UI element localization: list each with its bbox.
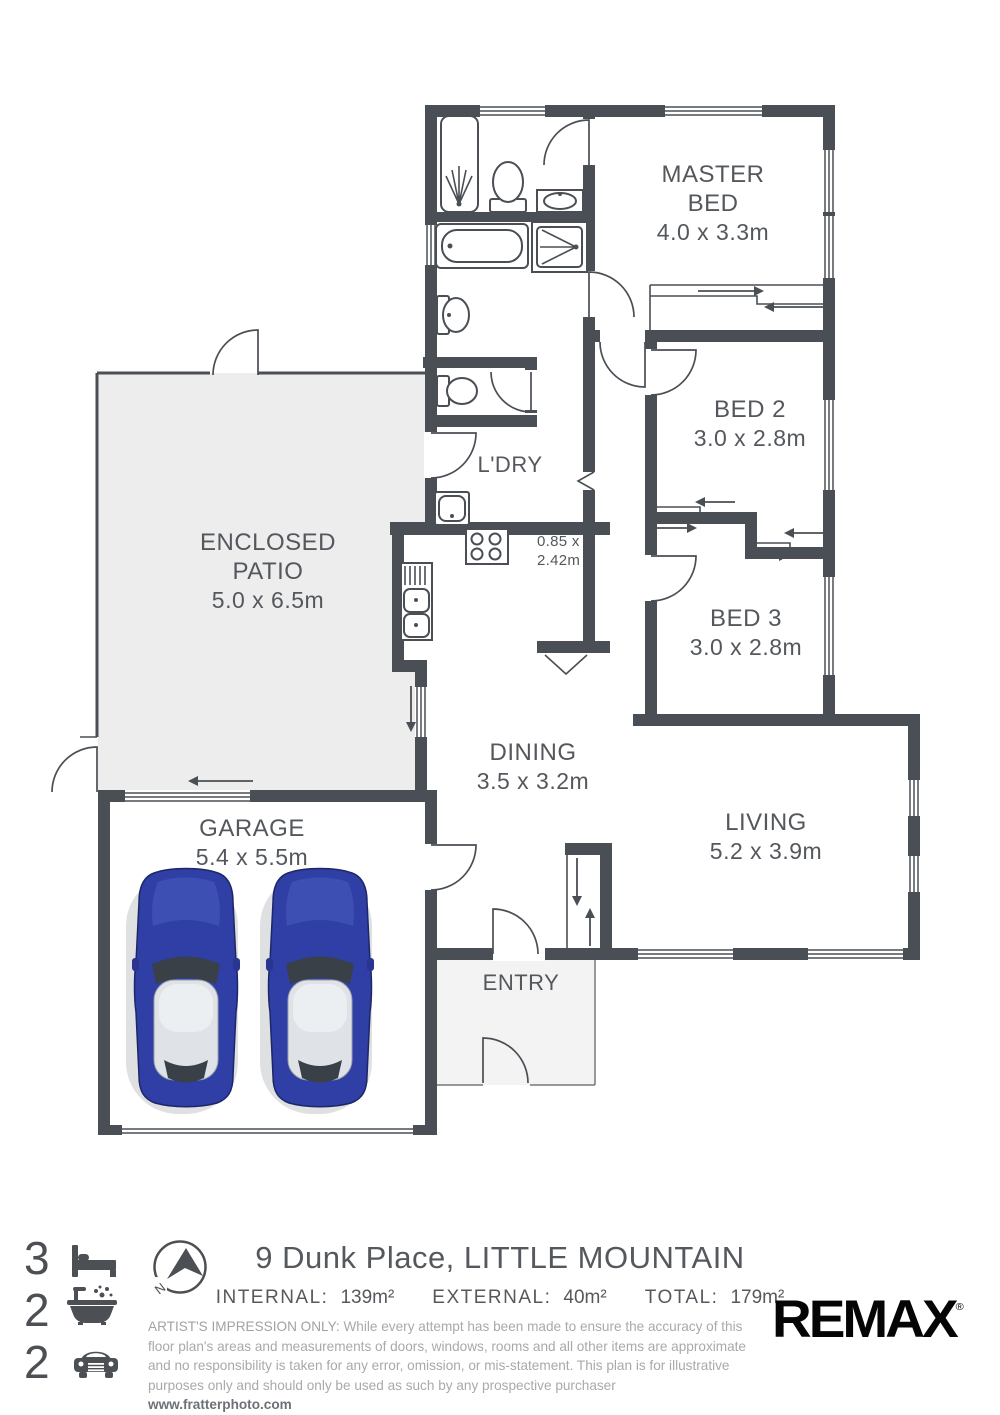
room-name: ENTRY xyxy=(483,968,560,997)
room-dims: 2.42m xyxy=(537,551,580,570)
cooktop-icon xyxy=(466,529,508,564)
room-dims: 4.0 x 3.3m xyxy=(657,218,769,247)
wc-toilet-icon xyxy=(437,376,477,406)
registered-mark: ® xyxy=(956,1301,964,1313)
room-dims: 3.5 x 3.2m xyxy=(477,767,589,796)
room-dims: 5.0 x 6.5m xyxy=(200,586,336,615)
room-name: GARAGE xyxy=(196,814,308,843)
external-label: EXTERNAL: xyxy=(432,1287,551,1309)
room-name: PATIO xyxy=(200,557,336,586)
internal-value: 139m² xyxy=(340,1287,394,1309)
shower2-icon xyxy=(532,222,587,272)
room-label-entry: ENTRY xyxy=(483,968,560,997)
room-label-dining: DINING 3.5 x 3.2m xyxy=(477,738,589,796)
floorplan-drawing xyxy=(0,0,1000,1135)
bathtub-icon xyxy=(436,224,528,268)
room-label-bed2: BED 2 3.0 x 2.8m xyxy=(694,395,806,453)
room-label-living: LIVING 5.2 x 3.9m xyxy=(710,808,822,866)
room-dims: 5.2 x 3.9m xyxy=(710,837,822,866)
room-name: BED 2 xyxy=(694,395,806,424)
room-dims: 5.4 x 5.5m xyxy=(196,843,308,872)
pedestal-basin-icon xyxy=(437,296,469,334)
car-icon xyxy=(72,1345,120,1381)
car xyxy=(126,869,240,1115)
property-address: 9 Dunk Place, LITTLE MOUNTAIN xyxy=(255,1240,744,1276)
internal-label: INTERNAL: xyxy=(216,1287,329,1309)
bathroom-count: 2 xyxy=(24,1287,50,1333)
room-label-bed3: BED 3 3.0 x 2.8m xyxy=(690,604,802,662)
total-area: TOTAL: 179m² xyxy=(645,1287,785,1309)
room-name: DINING xyxy=(477,738,589,767)
room-name: MASTER xyxy=(657,160,769,189)
room-dims: 0.85 x xyxy=(537,532,580,551)
toilet-icon xyxy=(490,162,526,212)
vanity-basin-icon xyxy=(537,190,583,212)
internal-area: INTERNAL: 139m² xyxy=(216,1287,395,1309)
external-area: EXTERNAL: 40m² xyxy=(432,1287,606,1309)
total-label: TOTAL: xyxy=(645,1287,719,1309)
room-label-garage: GARAGE 5.4 x 5.5m xyxy=(196,814,308,872)
room-dims: 3.0 x 2.8m xyxy=(690,633,802,662)
car-space-count: 2 xyxy=(24,1339,50,1385)
external-value: 40m² xyxy=(563,1287,606,1309)
shower-icon xyxy=(441,116,478,212)
room-name: BED 3 xyxy=(690,604,802,633)
room-name: L'DRY xyxy=(478,450,543,479)
area-summary: INTERNAL: 139m² EXTERNAL: 40m² TOTAL: 17… xyxy=(216,1287,785,1309)
kitchen-sink-icon xyxy=(401,563,432,640)
bedroom-count: 3 xyxy=(24,1235,50,1281)
compass-icon: N xyxy=(150,1237,210,1297)
disclaimer-heading: ARTIST'S IMPRESSION ONLY: xyxy=(148,1319,340,1334)
room-label-master: MASTER BED 4.0 x 3.3m xyxy=(657,160,769,247)
room-label-laundry: L'DRY xyxy=(478,450,543,479)
remax-logo-text: REMAX xyxy=(772,1289,956,1349)
laundry-tub-icon xyxy=(435,492,469,525)
room-label-patio: ENCLOSED PATIO 5.0 x 6.5m xyxy=(200,528,336,615)
room-name: ENCLOSED xyxy=(200,528,336,557)
room-dims: 3.0 x 2.8m xyxy=(694,424,806,453)
bed-icon xyxy=(70,1243,118,1279)
room-name: BED xyxy=(657,189,769,218)
room-name: LIVING xyxy=(710,808,822,837)
room-label-kitchen-dims: 0.85 x 2.42m xyxy=(537,532,580,570)
remax-logo: REMAX® xyxy=(772,1284,964,1342)
floorplan-page: MASTER BED 4.0 x 3.3m BED 2 3.0 x 2.8m B… xyxy=(0,0,1000,1415)
disclaimer-text: ARTIST'S IMPRESSION ONLY: While every at… xyxy=(148,1317,762,1415)
car xyxy=(260,869,374,1115)
bath-icon xyxy=(66,1284,118,1326)
photographer-website: www.fratterphoto.com xyxy=(148,1397,292,1412)
